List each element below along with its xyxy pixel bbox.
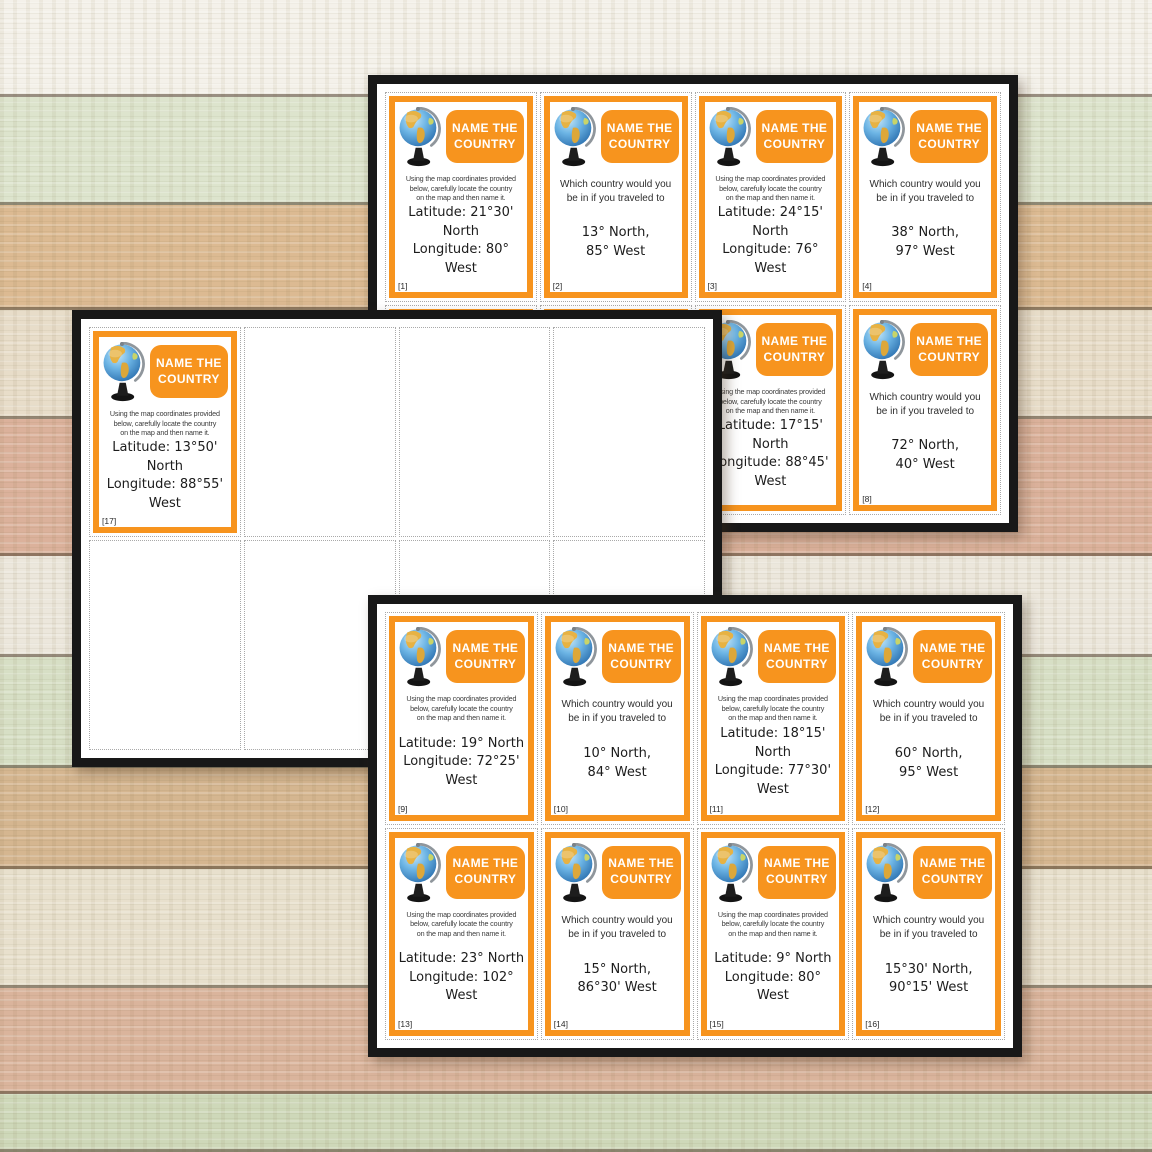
card-coordinates: 72° North,40° West	[862, 419, 988, 502]
card-header: NAME THE COUNTRY	[708, 320, 834, 380]
card-title: NAME THE COUNTRY	[446, 630, 525, 683]
coordinate-line: West	[398, 987, 525, 1005]
card-number: [1]	[398, 281, 407, 291]
instruction-line: below, carefully locate the country	[708, 397, 834, 407]
coordinate-line: 97° West	[862, 243, 988, 261]
card-cell: NAME THE COUNTRYWhich country would youb…	[849, 92, 1001, 302]
globe-icon	[710, 843, 756, 903]
task-card: NAME THE COUNTRYWhich country would youb…	[856, 616, 1001, 821]
instruction-line: Using the map coordinates provided	[102, 409, 228, 419]
card-header: NAME THE COUNTRY	[865, 627, 992, 687]
card-cell: NAME THE COUNTRYWhich country would youb…	[852, 828, 1005, 1041]
card-header: NAME THE COUNTRY	[102, 342, 228, 402]
card-number: [10]	[554, 804, 568, 814]
card-header: NAME THE COUNTRY	[554, 843, 681, 903]
card-title: NAME THE COUNTRY	[150, 345, 228, 398]
instruction-line: Using the map coordinates provided	[708, 387, 834, 397]
card-number: [4]	[862, 281, 871, 291]
card-coordinates: Latitude: 19° NorthLongitude: 72°25'West	[398, 723, 525, 811]
coordinate-line: West	[708, 473, 834, 491]
instruction-line: Which country would you	[862, 178, 988, 192]
card-cell: NAME THE COUNTRYWhich country would youb…	[849, 305, 1001, 515]
instruction-line: below, carefully locate the country	[710, 704, 837, 714]
card-title: NAME THE COUNTRY	[446, 846, 525, 899]
wood-plank	[0, 1094, 1152, 1152]
coordinate-line: 95° West	[865, 764, 992, 782]
coordinate-line: 90°15' West	[865, 979, 992, 997]
instruction-line: on the map and then name it.	[398, 193, 524, 203]
card-title: NAME THE COUNTRY	[913, 630, 992, 683]
globe-icon	[865, 627, 911, 687]
instruction-line: on the map and then name it.	[710, 929, 837, 939]
coordinate-line: Longitude: 76° West	[708, 241, 834, 278]
card-number: [11]	[710, 804, 724, 814]
card-cell: NAME THE COUNTRYUsing the map coordinate…	[385, 828, 538, 1041]
card-title: NAME THE COUNTRY	[602, 630, 681, 683]
coordinate-line: West	[398, 772, 525, 790]
card-number: [15]	[710, 1019, 724, 1029]
card-coordinates: Latitude: 18°15'NorthLongitude: 77°30'We…	[710, 723, 837, 811]
instruction-line: below, carefully locate the country	[398, 704, 525, 714]
coordinate-line: North	[708, 436, 834, 454]
coordinate-line: Latitude: 21°30'	[398, 204, 524, 222]
card-title: NAME THE COUNTRY	[602, 846, 681, 899]
card-instruction: Using the map coordinates providedbelow,…	[710, 694, 837, 723]
instruction-line: on the map and then name it.	[398, 929, 525, 939]
coordinate-line: Latitude: 9° North	[710, 950, 837, 968]
card-instruction: Using the map coordinates providedbelow,…	[398, 910, 525, 939]
card-header: NAME THE COUNTRY	[398, 107, 524, 167]
card-number: [14]	[554, 1019, 568, 1029]
coordinate-line: Latitude: 24°15'	[708, 204, 834, 222]
coordinate-line: West	[710, 781, 837, 799]
task-card: NAME THE COUNTRYUsing the map coordinate…	[701, 616, 846, 821]
coordinate-line: Longitude: 88°55'	[102, 476, 228, 494]
card-header: NAME THE COUNTRY	[710, 627, 837, 687]
card-cell: NAME THE COUNTRYUsing the map coordinate…	[695, 92, 847, 302]
card-instruction: Which country would yoube in if you trav…	[554, 698, 681, 726]
instruction-line: Using the map coordinates provided	[710, 910, 837, 920]
task-card: NAME THE COUNTRYUsing the map coordinate…	[389, 832, 534, 1037]
card-header: NAME THE COUNTRY	[862, 107, 988, 167]
instruction-line: on the map and then name it.	[708, 406, 834, 416]
instruction-line: Which country would you	[865, 914, 992, 928]
coordinate-line: Latitude: 18°15'	[710, 725, 837, 743]
card-instruction: Which country would yoube in if you trav…	[865, 914, 992, 942]
coordinate-line: Longitude: 72°25'	[398, 753, 525, 771]
coordinate-line: 38° North,	[862, 224, 988, 242]
card-title: NAME THE COUNTRY	[446, 110, 524, 163]
card-instruction: Using the map coordinates providedbelow,…	[710, 910, 837, 939]
card-instruction: Using the map coordinates providedbelow,…	[708, 387, 834, 416]
globe-icon	[865, 843, 911, 903]
coordinate-line: North	[398, 223, 524, 241]
coordinate-line: Latitude: 17°15'	[708, 417, 834, 435]
card-number: [9]	[398, 804, 407, 814]
card-header: NAME THE COUNTRY	[862, 320, 988, 380]
card-title: NAME THE COUNTRY	[913, 846, 992, 899]
instruction-line: on the map and then name it.	[710, 713, 837, 723]
coordinate-line: 85° West	[553, 243, 679, 261]
card-title: NAME THE COUNTRY	[758, 630, 837, 683]
card-title: NAME THE COUNTRY	[756, 323, 834, 376]
instruction-line: Which country would you	[554, 914, 681, 928]
instruction-line: Which country would you	[865, 698, 992, 712]
card-number: [16]	[865, 1019, 879, 1029]
coordinate-line: North	[102, 458, 228, 476]
coordinate-line: 84° West	[554, 764, 681, 782]
task-card: NAME THE COUNTRYWhich country would youb…	[853, 96, 997, 298]
instruction-line: be in if you traveled to	[553, 192, 679, 206]
card-instruction: Which country would yoube in if you trav…	[865, 698, 992, 726]
card-title: NAME THE COUNTRY	[756, 110, 834, 163]
instruction-line: Which country would you	[553, 178, 679, 192]
coordinate-line: Latitude: 23° North	[398, 950, 525, 968]
card-cell: NAME THE COUNTRYWhich country would youb…	[852, 612, 1005, 825]
instruction-line: below, carefully locate the country	[708, 184, 834, 194]
coordinate-line: 10° North,	[554, 745, 681, 763]
instruction-line: on the map and then name it.	[102, 428, 228, 438]
coordinate-line: 13° North,	[553, 224, 679, 242]
card-title: NAME THE COUNTRY	[910, 110, 988, 163]
coordinate-line: West	[102, 495, 228, 513]
card-header: NAME THE COUNTRY	[398, 627, 525, 687]
card-title: NAME THE COUNTRY	[758, 846, 837, 899]
card-cell: NAME THE COUNTRYUsing the map coordinate…	[89, 327, 241, 537]
card-cell: NAME THE COUNTRYWhich country would youb…	[541, 828, 694, 1041]
card-instruction: Using the map coordinates providedbelow,…	[398, 174, 524, 203]
instruction-line: Using the map coordinates provided	[398, 174, 524, 184]
card-number: [2]	[553, 281, 562, 291]
card-number: [12]	[865, 804, 879, 814]
coordinate-line: Latitude: 13°50'	[102, 439, 228, 457]
card-title: NAME THE COUNTRY	[601, 110, 679, 163]
instruction-line: on the map and then name it.	[398, 713, 525, 723]
card-header: NAME THE COUNTRY	[554, 627, 681, 687]
instruction-line: Which country would you	[554, 698, 681, 712]
instruction-line: below, carefully locate the country	[398, 919, 525, 929]
instruction-line: be in if you traveled to	[862, 192, 988, 206]
card-coordinates: 15° North,86°30' West	[554, 942, 681, 1028]
globe-icon	[102, 342, 148, 402]
card-cell: NAME THE COUNTRYWhich country would youb…	[540, 92, 692, 302]
globe-icon	[398, 843, 444, 903]
empty-cell	[89, 540, 241, 750]
empty-cell	[399, 327, 551, 537]
coordinate-line: Longitude: 80° West	[398, 241, 524, 278]
globe-icon	[398, 627, 444, 687]
task-card: NAME THE COUNTRYWhich country would youb…	[856, 832, 1001, 1037]
coordinate-line: 86°30' West	[554, 979, 681, 997]
instruction-line: Which country would you	[862, 391, 988, 405]
instruction-line: be in if you traveled to	[554, 712, 681, 726]
task-card: NAME THE COUNTRYWhich country would youb…	[545, 616, 690, 821]
card-cell: NAME THE COUNTRYUsing the map coordinate…	[697, 828, 850, 1041]
card-coordinates: 15°30' North,90°15' West	[865, 942, 992, 1028]
card-instruction: Which country would yoube in if you trav…	[862, 178, 988, 206]
task-card: NAME THE COUNTRYWhich country would youb…	[544, 96, 688, 298]
globe-icon	[398, 107, 444, 167]
sheet-bottom: NAME THE COUNTRYUsing the map coordinate…	[368, 595, 1022, 1057]
card-header: NAME THE COUNTRY	[553, 107, 679, 167]
card-number: [13]	[398, 1019, 412, 1029]
task-card: NAME THE COUNTRYUsing the map coordinate…	[389, 616, 534, 821]
card-instruction: Which country would yoube in if you trav…	[862, 391, 988, 419]
card-cell: NAME THE COUNTRYUsing the map coordinate…	[697, 612, 850, 825]
card-instruction: Using the map coordinates providedbelow,…	[102, 409, 228, 438]
globe-icon	[862, 107, 908, 167]
globe-icon	[708, 107, 754, 167]
globe-icon	[710, 627, 756, 687]
globe-icon	[862, 320, 908, 380]
instruction-line: Using the map coordinates provided	[398, 910, 525, 920]
instruction-line: be in if you traveled to	[865, 928, 992, 942]
instruction-line: below, carefully locate the country	[710, 919, 837, 929]
card-title: NAME THE COUNTRY	[910, 323, 988, 376]
instruction-line: Using the map coordinates provided	[710, 694, 837, 704]
card-coordinates: Latitude: 9° NorthLongitude: 80° West	[710, 939, 837, 1027]
card-header: NAME THE COUNTRY	[708, 107, 834, 167]
card-instruction: Using the map coordinates providedbelow,…	[398, 694, 525, 723]
coordinate-line: Longitude: 102°	[398, 969, 525, 987]
instruction-line: below, carefully locate the country	[102, 419, 228, 429]
card-instruction: Which country would yoube in if you trav…	[554, 914, 681, 942]
coordinate-line: 40° West	[862, 456, 988, 474]
coordinate-line: 60° North,	[865, 745, 992, 763]
task-card: NAME THE COUNTRYUsing the map coordinate…	[389, 96, 533, 298]
coordinate-line: 15°30' North,	[865, 961, 992, 979]
task-card: NAME THE COUNTRYUsing the map coordinate…	[93, 331, 237, 533]
instruction-line: Using the map coordinates provided	[398, 694, 525, 704]
empty-cell	[553, 327, 705, 537]
card-coordinates: Latitude: 23° NorthLongitude: 102°West	[398, 939, 525, 1027]
instruction-line: on the map and then name it.	[708, 193, 834, 203]
card-number: [3]	[708, 281, 717, 291]
card-cell: NAME THE COUNTRYUsing the map coordinate…	[385, 92, 537, 302]
task-card: NAME THE COUNTRYWhich country would youb…	[853, 309, 997, 511]
card-instruction: Using the map coordinates providedbelow,…	[708, 174, 834, 203]
card-cell: NAME THE COUNTRYWhich country would youb…	[541, 612, 694, 825]
coordinate-line: North	[708, 223, 834, 241]
card-coordinates: Latitude: 13°50'NorthLongitude: 88°55'We…	[102, 438, 228, 524]
card-coordinates: Latitude: 17°15'NorthLongitude: 88°45'We…	[708, 416, 834, 502]
task-card: NAME THE COUNTRYWhich country would youb…	[545, 832, 690, 1037]
coordinate-line: Longitude: 88°45'	[708, 454, 834, 472]
card-header: NAME THE COUNTRY	[865, 843, 992, 903]
card-coordinates: 38° North,97° West	[862, 206, 988, 289]
coordinate-line: North	[710, 744, 837, 762]
coordinate-line: Longitude: 80° West	[710, 969, 837, 1006]
card-cell: NAME THE COUNTRYUsing the map coordinate…	[385, 612, 538, 825]
globe-icon	[554, 627, 600, 687]
globe-icon	[553, 107, 599, 167]
coordinate-line: 72° North,	[862, 437, 988, 455]
card-number: [17]	[102, 516, 116, 526]
card-instruction: Which country would yoube in if you trav…	[553, 178, 679, 206]
globe-icon	[554, 843, 600, 903]
card-coordinates: 10° North,84° West	[554, 726, 681, 812]
card-header: NAME THE COUNTRY	[398, 843, 525, 903]
task-card: NAME THE COUNTRYUsing the map coordinate…	[701, 832, 846, 1037]
instruction-line: Using the map coordinates provided	[708, 174, 834, 184]
coordinate-line: Longitude: 77°30'	[710, 762, 837, 780]
card-coordinates: 13° North,85° West	[553, 206, 679, 289]
card-header: NAME THE COUNTRY	[710, 843, 837, 903]
task-card: NAME THE COUNTRYUsing the map coordinate…	[699, 96, 843, 298]
instruction-line: be in if you traveled to	[554, 928, 681, 942]
instruction-line: below, carefully locate the country	[398, 184, 524, 194]
empty-cell	[244, 327, 396, 537]
card-coordinates: Latitude: 21°30'NorthLongitude: 80° West	[398, 203, 524, 289]
coordinate-line: Latitude: 19° North	[398, 735, 525, 753]
card-coordinates: 60° North,95° West	[865, 726, 992, 812]
coordinate-line: 15° North,	[554, 961, 681, 979]
instruction-line: be in if you traveled to	[865, 712, 992, 726]
card-number: [8]	[862, 494, 871, 504]
card-coordinates: Latitude: 24°15'NorthLongitude: 76° West	[708, 203, 834, 289]
instruction-line: be in if you traveled to	[862, 405, 988, 419]
